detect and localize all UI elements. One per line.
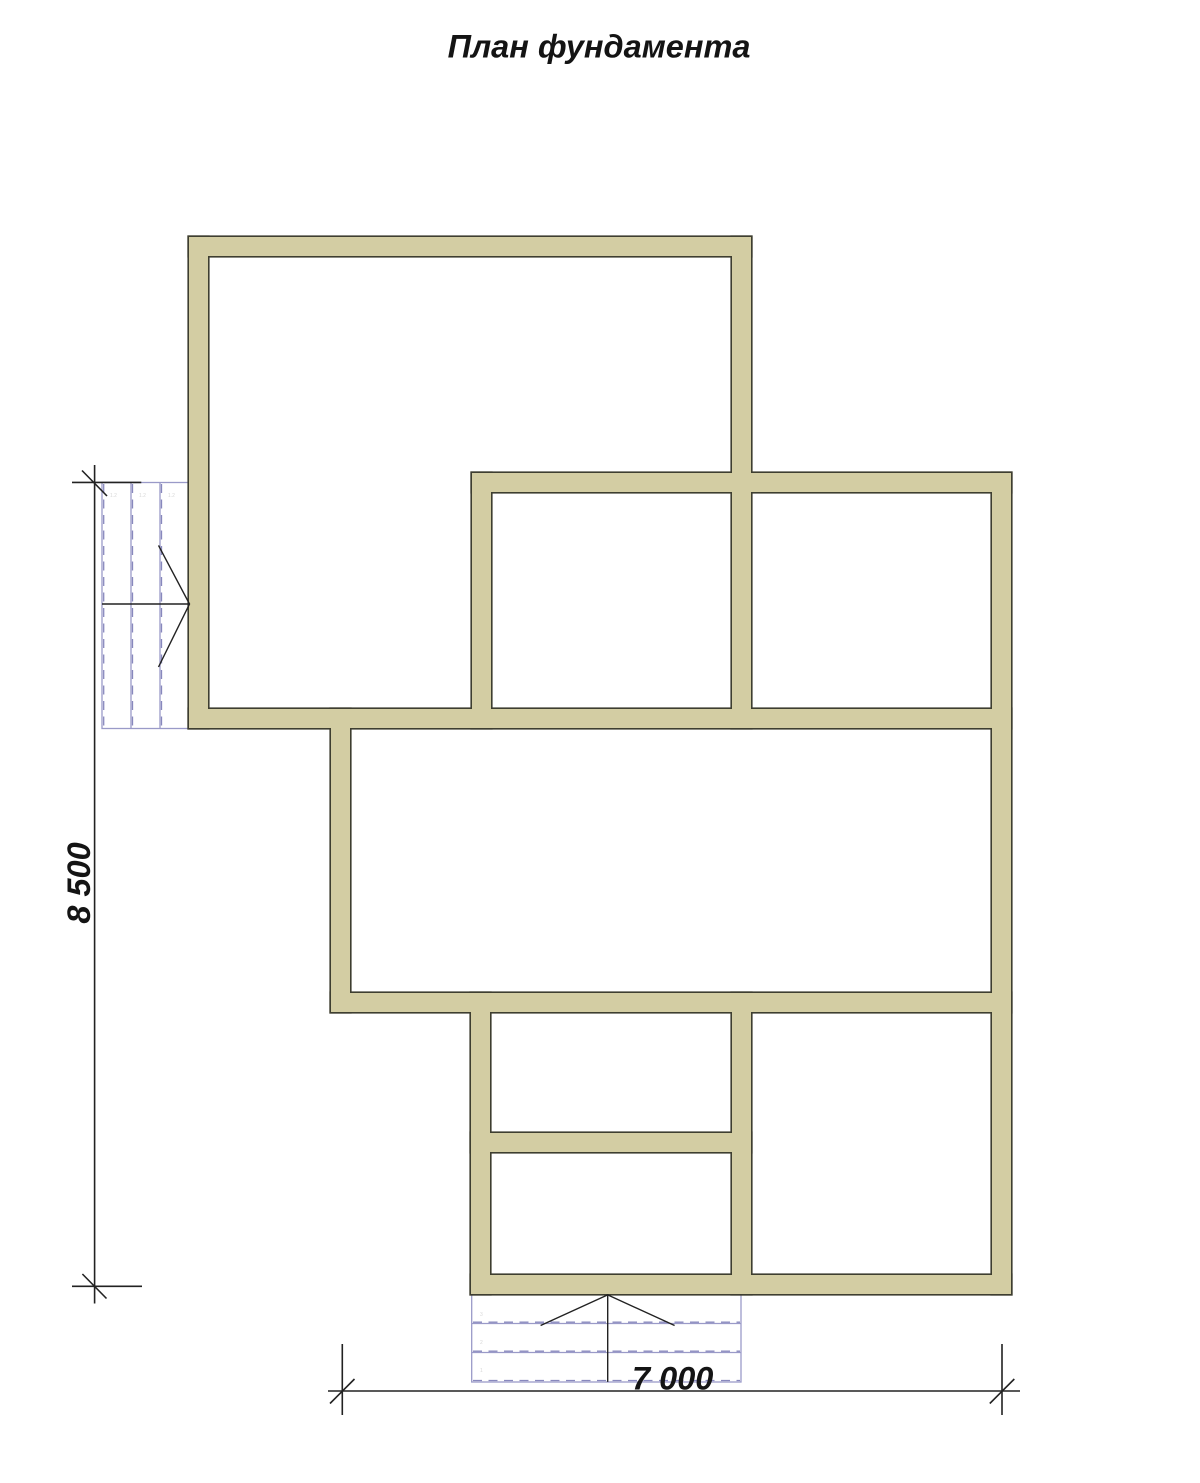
svg-text:План фундамента: План фундамента [448, 29, 751, 65]
svg-text:2: 2 [480, 1340, 483, 1346]
svg-text:8 500: 8 500 [61, 842, 97, 923]
svg-text:1.2: 1.2 [139, 493, 146, 499]
svg-text:1.2: 1.2 [110, 493, 117, 499]
svg-text:7 000: 7 000 [632, 1361, 713, 1397]
svg-text:1: 1 [480, 1368, 483, 1374]
svg-text:1.2: 1.2 [168, 493, 175, 499]
svg-text:3: 3 [480, 1312, 483, 1318]
